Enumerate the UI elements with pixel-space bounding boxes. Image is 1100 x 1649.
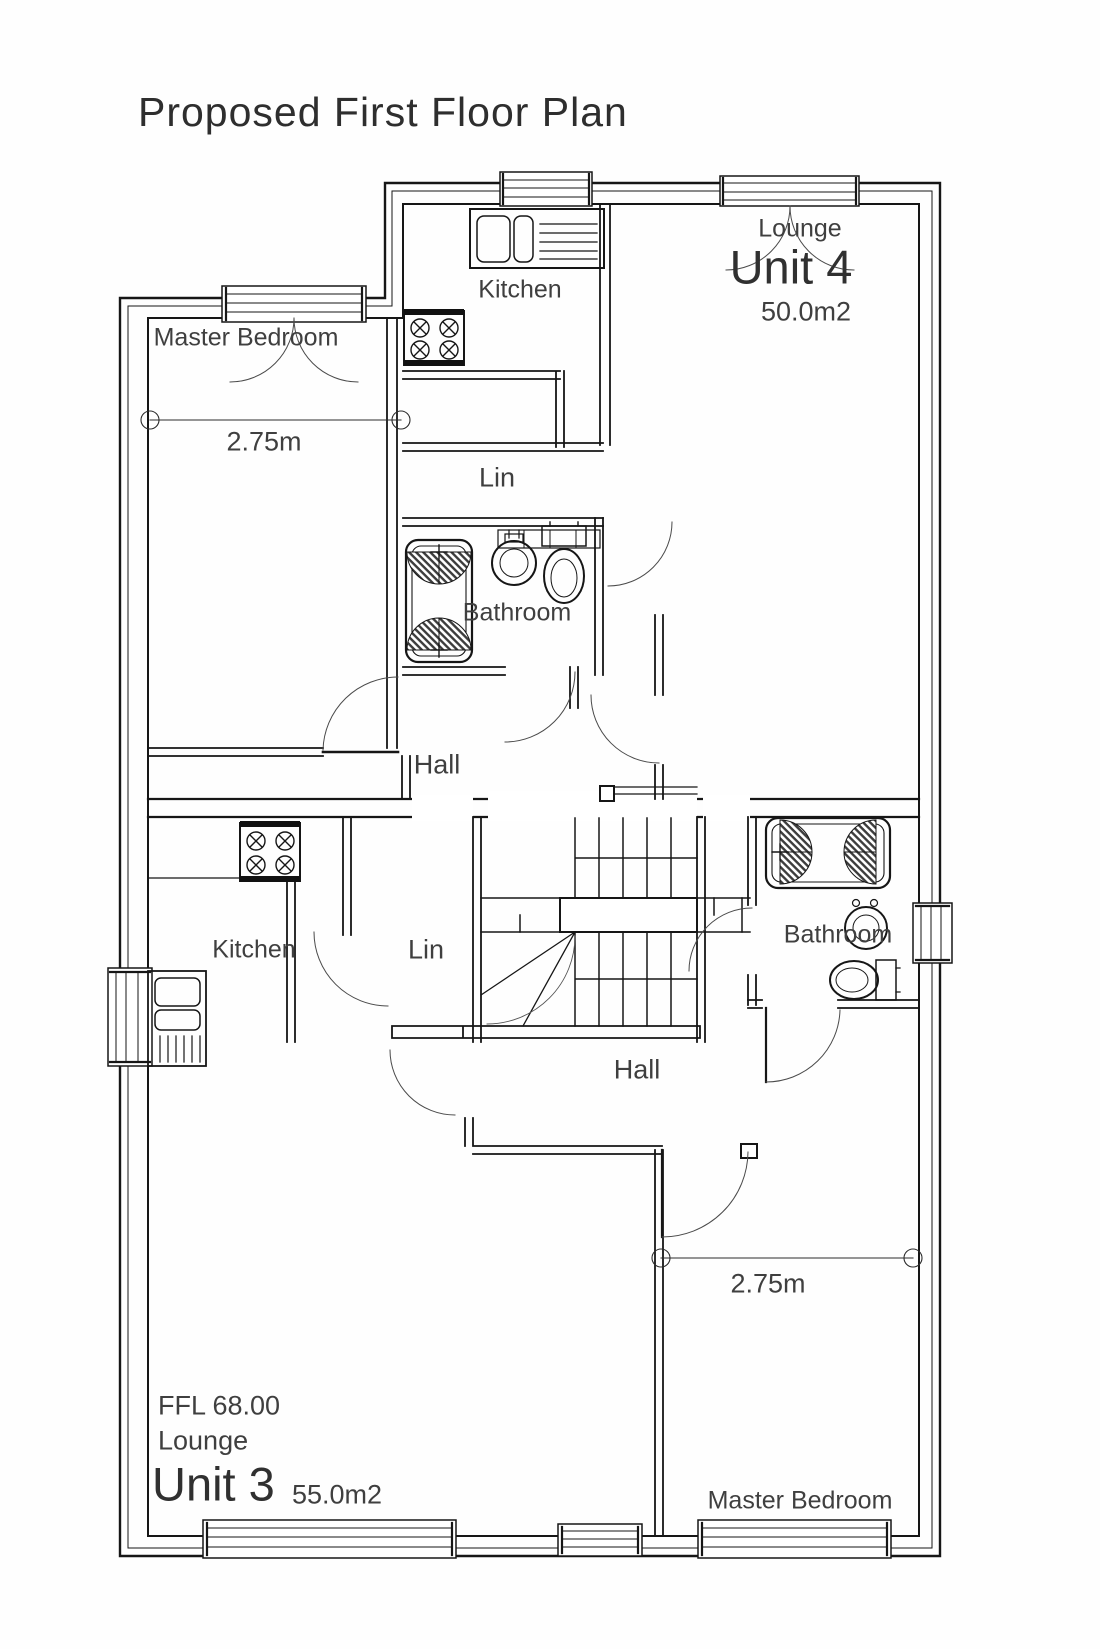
sink-unit3-symbol (148, 971, 206, 1066)
window-kitchen-unit3 (108, 968, 152, 1066)
window-kitchen-unit4 (500, 172, 592, 206)
window-bathroom-unit3 (913, 903, 952, 963)
door-arc (608, 522, 672, 586)
stair-opening (488, 791, 697, 821)
unit3-name-label: Unit 3 (152, 1461, 275, 1508)
hob-unit3-symbol (240, 821, 300, 882)
unit4-kitchen-label: Kitchen (478, 278, 561, 303)
outer-walls (120, 183, 940, 1556)
door-arc (662, 1152, 748, 1237)
hob-unit4-symbol (404, 309, 464, 366)
window-master-bedroom-unit4 (222, 286, 366, 322)
unit4-lounge-label: Lounge (758, 217, 841, 242)
door-arcs (230, 206, 854, 1237)
unit3-bathroom-label: Bathroom (784, 923, 892, 948)
toilet-unit4-symbol (542, 522, 586, 603)
door-arc (766, 1010, 840, 1082)
unit4-area-label: 50.0m2 (761, 299, 851, 326)
window-lounge-unit3 (203, 1520, 456, 1558)
door-arc (390, 1050, 455, 1115)
door-arc (505, 672, 575, 742)
unit4-lin-label: Lin (479, 465, 515, 492)
unit3-kitchen-label: Kitchen (212, 938, 295, 963)
floor-plan-page: Proposed First Floor Plan Lounge Unit 4 … (0, 0, 1100, 1649)
dimension-line-unit3 (652, 1249, 922, 1267)
division-opening-unit3 (703, 795, 750, 821)
bath-unit3-symbol (766, 818, 890, 888)
unit3-area-label: 55.0m2 (292, 1482, 382, 1509)
unit3-master-bedroom-label: Master Bedroom (708, 1489, 893, 1514)
door-arc (591, 695, 659, 763)
unit3-dimension-label: 2.75m (730, 1271, 805, 1298)
unit4-bathroom-label: Bathroom (463, 601, 571, 626)
unit4-master-bedroom-label: Master Bedroom (154, 326, 339, 351)
basin-unit4-symbol (492, 530, 536, 585)
window-lounge-doors-unit4 (720, 176, 859, 206)
division-opening-unit4 (412, 795, 473, 821)
window-bottom-middle (558, 1524, 642, 1556)
sink-unit4-symbol (470, 209, 604, 268)
unit3-lounge-label: Lounge (158, 1428, 248, 1455)
stairs-symbol (473, 817, 750, 1042)
toilet-unit3-symbol (830, 960, 900, 1000)
window-master-bedroom-unit3 (698, 1520, 891, 1558)
unit3-hall-label: Hall (614, 1057, 661, 1084)
unit4-dimension-label: 2.75m (226, 429, 301, 456)
unit4-hall-label: Hall (414, 752, 461, 779)
page-title: Proposed First Floor Plan (138, 92, 628, 133)
unit4-name-label: Unit 4 (730, 244, 853, 291)
unit3-ffl-label: FFL 68.00 (158, 1393, 280, 1420)
unit3-lin-label: Lin (408, 937, 444, 964)
door-arc (314, 932, 388, 1006)
